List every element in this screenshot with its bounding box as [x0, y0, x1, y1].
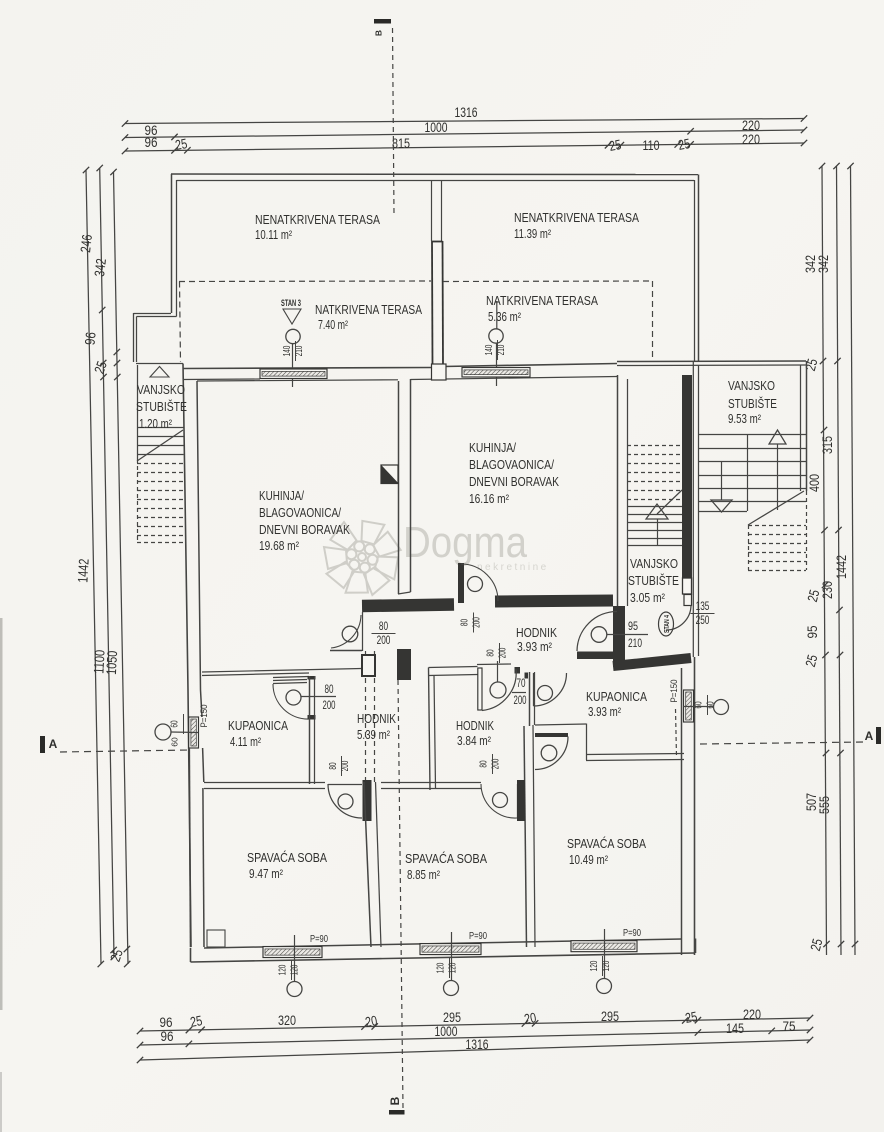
svg-text:342: 342 — [815, 255, 831, 273]
svg-text:250: 250 — [696, 613, 710, 627]
svg-text:19.68 m²: 19.68 m² — [259, 538, 299, 553]
svg-text:A: A — [49, 737, 58, 751]
svg-text:145: 145 — [726, 1020, 744, 1036]
svg-text:1000: 1000 — [425, 119, 448, 135]
svg-text:200: 200 — [339, 761, 351, 772]
svg-text:110: 110 — [643, 137, 660, 153]
svg-text:HODNIK: HODNIK — [516, 625, 557, 640]
svg-text:210: 210 — [293, 346, 305, 357]
svg-text:815: 815 — [392, 135, 410, 151]
svg-text:NATKRIVENA TERASA: NATKRIVENA TERASA — [486, 293, 598, 308]
svg-text:120: 120 — [600, 961, 612, 972]
svg-text:80: 80 — [327, 762, 339, 769]
svg-text:400: 400 — [806, 474, 822, 492]
svg-text:BLAGOVAONICA/: BLAGOVAONICA/ — [259, 505, 341, 520]
svg-text:60: 60 — [693, 701, 705, 708]
svg-text:BLAGOVAONICA/: BLAGOVAONICA/ — [469, 457, 554, 472]
svg-text:3.05 m²: 3.05 m² — [630, 590, 666, 605]
svg-text:80: 80 — [485, 649, 497, 656]
svg-text:P=90: P=90 — [623, 928, 641, 939]
svg-text:80: 80 — [325, 682, 334, 696]
svg-text:Dogma: Dogma — [403, 518, 527, 567]
svg-text:200: 200 — [323, 698, 336, 712]
svg-text:A: A — [865, 729, 874, 743]
svg-text:1442: 1442 — [833, 555, 849, 579]
svg-text:96: 96 — [145, 134, 158, 150]
svg-text:NENATKRIVENA TERASA: NENATKRIVENA TERASA — [514, 210, 639, 225]
svg-text:60: 60 — [170, 737, 180, 747]
svg-text:STUBIŠTE: STUBIŠTE — [136, 399, 187, 414]
svg-text:VANJSKO: VANJSKO — [728, 378, 775, 393]
svg-text:VANJSKO: VANJSKO — [630, 556, 678, 571]
svg-text:NATKRIVENA TERASA: NATKRIVENA TERASA — [315, 302, 422, 317]
svg-text:210: 210 — [628, 636, 642, 650]
svg-text:1442: 1442 — [74, 558, 91, 583]
svg-text:8.85 m²: 8.85 m² — [407, 867, 440, 882]
svg-text:1316: 1316 — [455, 104, 478, 120]
svg-text:KUHINJA/: KUHINJA/ — [469, 440, 516, 455]
svg-text:555: 555 — [816, 796, 832, 814]
svg-text:120: 120 — [277, 965, 289, 976]
svg-text:STUBIŠTE: STUBIŠTE — [728, 396, 777, 411]
svg-text:7.40 m²: 7.40 m² — [318, 317, 348, 332]
svg-text:1050: 1050 — [103, 650, 120, 675]
svg-text:1.20 m²: 1.20 m² — [139, 416, 173, 431]
svg-text:3.93 m²: 3.93 m² — [517, 639, 552, 654]
svg-text:96: 96 — [81, 331, 98, 346]
svg-text:STUBIŠTE: STUBIŠTE — [628, 573, 679, 588]
svg-text:9.53 m²: 9.53 m² — [728, 411, 762, 426]
svg-text:246: 246 — [77, 234, 95, 254]
svg-text:DNEVNI BORAVAK: DNEVNI BORAVAK — [259, 522, 350, 537]
svg-text:140: 140 — [281, 346, 293, 357]
svg-text:5.39 m²: 5.39 m² — [357, 727, 390, 742]
svg-text:KUHINJA/: KUHINJA/ — [259, 488, 304, 503]
svg-text:B: B — [388, 1096, 402, 1105]
svg-text:HODNIK: HODNIK — [357, 711, 396, 726]
svg-text:200: 200 — [497, 648, 509, 659]
svg-text:200: 200 — [471, 617, 483, 628]
svg-text:3.84 m²: 3.84 m² — [457, 733, 491, 748]
svg-text:KUPAONICA: KUPAONICA — [586, 689, 647, 704]
svg-text:nekretnine: nekretnine — [477, 562, 549, 573]
svg-text:10.49 m²: 10.49 m² — [569, 852, 608, 867]
svg-text:120: 120 — [289, 965, 301, 976]
svg-text:230: 230 — [819, 581, 835, 599]
svg-text:P=90: P=90 — [469, 931, 487, 942]
svg-text:P=90: P=90 — [310, 934, 328, 945]
svg-text:120: 120 — [588, 961, 600, 972]
svg-text:10.11 m²: 10.11 m² — [255, 227, 292, 242]
svg-text:80: 80 — [379, 619, 388, 633]
svg-text:120: 120 — [447, 963, 459, 974]
svg-text:315: 315 — [819, 436, 835, 454]
svg-text:295: 295 — [601, 1008, 619, 1024]
svg-text:200: 200 — [490, 759, 502, 770]
svg-text:HODNIK: HODNIK — [456, 718, 494, 733]
svg-text:210: 210 — [495, 345, 507, 356]
svg-text:140: 140 — [483, 345, 495, 356]
svg-text:9.47 m²: 9.47 m² — [249, 866, 283, 881]
svg-text:4.11 m²: 4.11 m² — [230, 734, 261, 749]
svg-text:SPAVAĆA SOBA: SPAVAĆA SOBA — [247, 850, 327, 865]
svg-text:80: 80 — [478, 760, 490, 767]
svg-text:220: 220 — [743, 1006, 761, 1022]
svg-text:KUPAONICA: KUPAONICA — [228, 718, 288, 733]
svg-text:1316: 1316 — [466, 1036, 489, 1052]
svg-text:135: 135 — [696, 599, 710, 613]
svg-text:16.16 m²: 16.16 m² — [469, 491, 509, 506]
svg-text:STAN 4: STAN 4 — [662, 614, 671, 633]
svg-text:P=150: P=150 — [199, 705, 209, 728]
svg-text:95: 95 — [628, 619, 638, 633]
svg-text:NENATKRIVENA TERASA: NENATKRIVENA TERASA — [255, 212, 380, 227]
svg-text:80: 80 — [459, 619, 471, 626]
svg-text:342: 342 — [91, 258, 109, 278]
svg-text:SPAVAĆA SOBA: SPAVAĆA SOBA — [567, 836, 646, 851]
svg-text:SPAVAĆA SOBA: SPAVAĆA SOBA — [405, 851, 487, 866]
svg-text:200: 200 — [514, 693, 527, 707]
svg-text:DNEVNI BORAVAK: DNEVNI BORAVAK — [469, 474, 559, 489]
svg-text:11.39 m²: 11.39 m² — [514, 226, 551, 241]
svg-text:3.93 m²: 3.93 m² — [588, 704, 621, 719]
svg-text:200: 200 — [377, 633, 391, 647]
svg-text:75: 75 — [783, 1018, 796, 1034]
svg-text:P=150: P=150 — [669, 680, 679, 703]
svg-text:1000: 1000 — [435, 1023, 458, 1039]
svg-text:220: 220 — [742, 131, 760, 147]
svg-text:STAN 3: STAN 3 — [281, 298, 301, 309]
svg-text:96: 96 — [161, 1028, 174, 1044]
svg-text:70: 70 — [517, 676, 526, 690]
svg-text:5.36 m²: 5.36 m² — [488, 309, 521, 324]
svg-text:120: 120 — [435, 963, 447, 974]
svg-text:VANJSKO: VANJSKO — [137, 382, 185, 397]
svg-text:60: 60 — [169, 720, 181, 727]
svg-text:B: B — [374, 30, 384, 36]
svg-text:95: 95 — [804, 625, 820, 638]
svg-text:320: 320 — [278, 1012, 296, 1028]
